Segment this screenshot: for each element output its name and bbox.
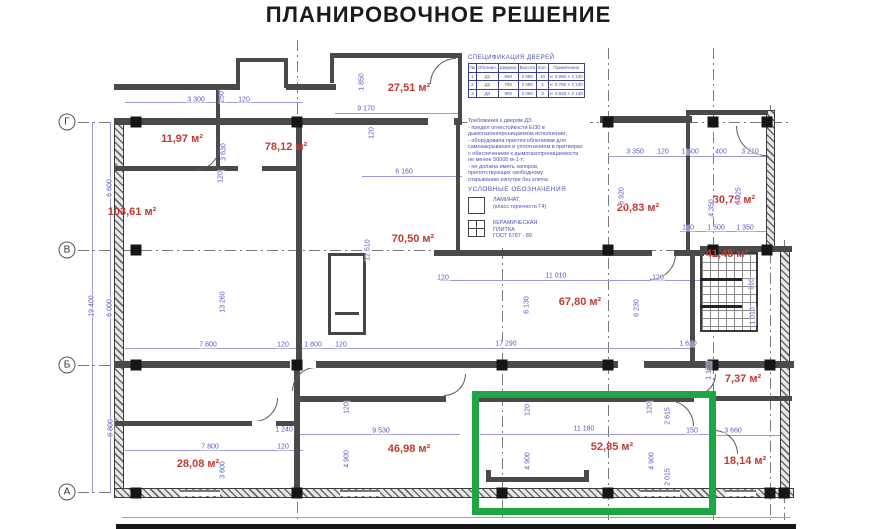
wall xyxy=(600,116,692,123)
dimension-label: 3 660 xyxy=(723,428,743,435)
door-swing-arc xyxy=(430,58,456,84)
window-opening xyxy=(726,490,756,496)
dimension-label: 4 350 xyxy=(709,198,716,218)
wall xyxy=(114,421,254,426)
dimension-line xyxy=(335,113,460,114)
spec-cell: 1 xyxy=(469,72,477,81)
dimension-label: 6 160 xyxy=(394,169,414,176)
dimension-label: 120 xyxy=(369,126,376,140)
dimension-label: 4 900 xyxy=(344,449,351,469)
dimension-label: 19 400 xyxy=(89,294,96,317)
structural-column xyxy=(131,117,142,128)
spec-cell: н: 0,930 × 2 130 xyxy=(548,89,584,98)
spec-row: 2Д27502 0804н: 0,780 × 2 130 xyxy=(469,81,585,90)
spec-cell: 2 080 xyxy=(518,89,536,98)
door-notes-panel: Требования к дверям Д3:- предел огнестой… xyxy=(468,118,590,183)
wall xyxy=(296,118,302,368)
wc-partition xyxy=(700,278,742,281)
wall xyxy=(114,84,240,90)
dimension-label: 6 800 xyxy=(108,418,115,438)
door-swing-arc xyxy=(444,374,466,396)
window-opening xyxy=(180,490,220,496)
wall xyxy=(456,118,460,252)
room-area-label: 28,08 м² xyxy=(177,458,219,470)
spec-col-header: Ширина xyxy=(498,64,518,73)
dimension-label: 120 xyxy=(276,444,290,451)
legend-item-ceramic-tile: КЕРАМИЧЕСКАЯ ПЛИТКА ГОСТ 6787 - 89 xyxy=(468,220,588,240)
structural-column xyxy=(292,117,303,128)
spec-cell: 3 xyxy=(537,89,549,98)
wall xyxy=(286,84,336,90)
spec-cell: 900 xyxy=(498,89,518,98)
wall xyxy=(780,246,790,498)
structural-column xyxy=(603,245,614,256)
room-area-label: 27,51 м² xyxy=(388,82,430,94)
structural-column xyxy=(762,117,773,128)
floor-plan-page: ПЛАНИРОВОЧНОЕ РЕШЕНИЕ ГВБА 27,51 м²11,97… xyxy=(0,0,877,529)
structural-column xyxy=(708,117,719,128)
spec-cell: Д1 xyxy=(476,72,498,81)
laminate-swatch xyxy=(468,197,485,214)
structural-column xyxy=(131,245,142,256)
axis-label: А xyxy=(59,484,76,501)
dimension-line xyxy=(362,176,462,177)
spec-cell: 10 xyxy=(537,72,549,81)
bottom-border-bar xyxy=(116,524,796,529)
wall xyxy=(712,396,792,401)
room-area-label: 18,14 м² xyxy=(724,455,766,467)
dimension-label: 1 500 xyxy=(680,149,700,156)
floor-plan-drawing: ГВБА 27,51 м²11,97 м²78,12 м²103,61 м²70… xyxy=(0,0,877,529)
dimension-label: 3 600 xyxy=(220,460,227,480)
dimension-label: 9 530 xyxy=(371,428,391,435)
spec-cell: н: 0,780 × 2 130 xyxy=(548,81,584,90)
window-opening xyxy=(340,490,380,496)
legend-panel: УСЛОВНЫЕ ОБОЗНАЧЕНИЯ ЛАМИНАТ, (класс гор… xyxy=(468,186,588,246)
dimension-label: 3 210 xyxy=(740,149,760,156)
wall xyxy=(690,250,695,365)
spec-cell: 750 xyxy=(498,81,518,90)
legend-label: КЕРАМИЧЕСКАЯ ПЛИТКА ГОСТ 6787 - 89 xyxy=(493,220,538,240)
dimension-label: 1 150 xyxy=(706,361,713,381)
spec-cell: 2 080 xyxy=(518,81,536,90)
structural-column xyxy=(779,488,790,499)
room-area-label: 41,45 м² xyxy=(706,248,748,260)
spec-cell: 2 xyxy=(469,81,477,90)
wall xyxy=(276,421,298,426)
door-swing-arc xyxy=(254,398,278,422)
dimension-label: 3 630 xyxy=(221,142,228,162)
room-area-label: 67,80 м² xyxy=(559,296,601,308)
dimension-label: 6 025 xyxy=(736,186,743,206)
dimension-label: 6 000 xyxy=(107,298,114,318)
dimension-label: 910 xyxy=(749,277,756,291)
structural-column xyxy=(603,117,614,128)
dimension-label: 120 xyxy=(237,97,251,104)
spec-cell: 4 xyxy=(537,81,549,90)
dimension-label: 6 920 xyxy=(619,186,626,206)
dimension-label: 3 300 xyxy=(186,97,206,104)
spec-col-header: Кол. xyxy=(537,64,549,73)
room-area-label: 103,61 м² xyxy=(108,206,157,218)
structural-column xyxy=(292,360,303,371)
structural-column xyxy=(603,360,614,371)
axis-label: Б xyxy=(59,357,76,374)
wall xyxy=(114,361,794,368)
wall xyxy=(434,250,652,256)
highlight-box xyxy=(472,391,716,515)
room-area-label: 30,79 м² xyxy=(713,194,755,206)
door-opening xyxy=(428,118,454,125)
spec-row: 3Д39002 0803н: 0,930 × 2 130 xyxy=(469,89,585,98)
dimension-line xyxy=(122,517,790,518)
dimension-label: 1 850 xyxy=(359,72,366,92)
spec-cell: 950 xyxy=(498,72,518,81)
ceramic-tile-swatch xyxy=(468,220,485,237)
dimension-label: 1 500 xyxy=(706,225,726,232)
wc-partition xyxy=(700,305,742,308)
legend-item-laminate: ЛАМИНАТ, (класс горючести Г4) xyxy=(468,197,588,214)
wall xyxy=(766,110,775,250)
wall xyxy=(114,118,462,125)
room-area-label: 7,37 м² xyxy=(725,373,761,385)
axis-label: Г xyxy=(59,114,76,131)
structural-column xyxy=(131,360,142,371)
dimension-label: 250 xyxy=(219,90,226,104)
spec-cell: 3 xyxy=(469,89,477,98)
dimension-label: 1 240 xyxy=(274,427,294,434)
wall xyxy=(330,53,462,58)
dimension-line xyxy=(330,348,690,349)
dimension-label: 7 800 xyxy=(198,342,218,349)
dimension-label: 1 800 xyxy=(303,342,323,349)
dimension-label: 1 350 xyxy=(735,225,755,232)
dimension-label: 13 260 xyxy=(220,290,227,313)
dimension-line xyxy=(440,280,712,281)
dimension-label: 3 350 xyxy=(625,149,645,156)
door-notes-text: Требования к дверям Д3:- предел огнестой… xyxy=(468,118,590,183)
wall xyxy=(330,53,334,83)
elevator-shaft xyxy=(328,253,366,335)
wall xyxy=(300,396,446,402)
spec-cell: 2 080 xyxy=(518,72,536,81)
spec-col-header: Примечание xyxy=(548,64,584,73)
room-area-label: 46,98 м² xyxy=(388,443,430,455)
dimension-label: 120 xyxy=(334,342,348,349)
dimension-label: 12 510 xyxy=(365,238,372,261)
room-area-label: 78,12 м² xyxy=(265,141,307,153)
structural-column xyxy=(292,488,303,499)
door-spec-table: №Обознач.ШиринаВысотаКол.Примечание1Д195… xyxy=(468,63,585,98)
door-opening xyxy=(238,166,262,171)
spec-cell: Д2 xyxy=(476,81,498,90)
dimension-label: 120 xyxy=(656,149,670,156)
dimension-label: 17 290 xyxy=(494,341,517,348)
dimension-label: 120 xyxy=(344,401,351,415)
dimension-label: 6 230 xyxy=(634,298,641,318)
dimension-label: 6 600 xyxy=(107,178,114,198)
dimension-line xyxy=(125,102,303,103)
dimension-label: 150 xyxy=(681,225,695,232)
dimension-label: 11 010 xyxy=(545,273,568,280)
note-line: открыванию изнутри без ключа xyxy=(468,177,590,184)
note-line: самозакрывания и уплотнением в притворах xyxy=(468,144,590,151)
legend-label: ЛАМИНАТ, (класс горючести Г4) xyxy=(493,197,546,214)
wall xyxy=(236,58,288,62)
legend-title: УСЛОВНЫЕ ОБОЗНАЧЕНИЯ xyxy=(468,186,588,193)
spec-col-header: Обознач. xyxy=(476,64,498,73)
structural-column xyxy=(765,488,776,499)
wall xyxy=(114,118,124,498)
structural-column xyxy=(765,360,776,371)
dimension-label: 1 620 xyxy=(678,341,698,348)
dimension-label: 6 130 xyxy=(524,295,531,315)
spec-cell: н: 0,980 × 2 130 xyxy=(548,72,584,81)
dimension-label: 400 xyxy=(714,149,728,156)
dimension-label: 120 xyxy=(218,170,225,184)
dimension-label: 120 xyxy=(436,275,450,282)
dimension-label: 120 xyxy=(276,342,290,349)
axis-label: В xyxy=(59,242,76,259)
wall xyxy=(236,58,240,88)
spec-cell: Д3 xyxy=(476,89,498,98)
dimension-label: 7 800 xyxy=(200,444,220,451)
structural-column xyxy=(131,488,142,499)
door-opening xyxy=(252,421,276,426)
room-area-label: 70,50 м² xyxy=(392,233,434,245)
door-opening xyxy=(618,361,644,368)
dimension-label: 120 xyxy=(651,275,665,282)
dimension-label: 9 170 xyxy=(356,106,376,113)
room-area-label: 11,97 м² xyxy=(161,133,203,145)
door-spec-panel: СПЕЦИФИКАЦИЯ ДВЕРЕЙ №Обознач.ШиринаВысот… xyxy=(468,55,600,98)
dimension-label: 1 010 xyxy=(750,306,757,326)
wall xyxy=(688,110,768,115)
door-spec-title: СПЕЦИФИКАЦИЯ ДВЕРЕЙ xyxy=(468,55,600,61)
spec-col-header: Высота xyxy=(518,64,536,73)
spec-row: 1Д19502 08010н: 0,980 × 2 130 xyxy=(469,72,585,81)
wall xyxy=(458,53,462,122)
structural-column xyxy=(762,245,773,256)
structural-column xyxy=(497,360,508,371)
spec-col-header: № xyxy=(469,64,477,73)
